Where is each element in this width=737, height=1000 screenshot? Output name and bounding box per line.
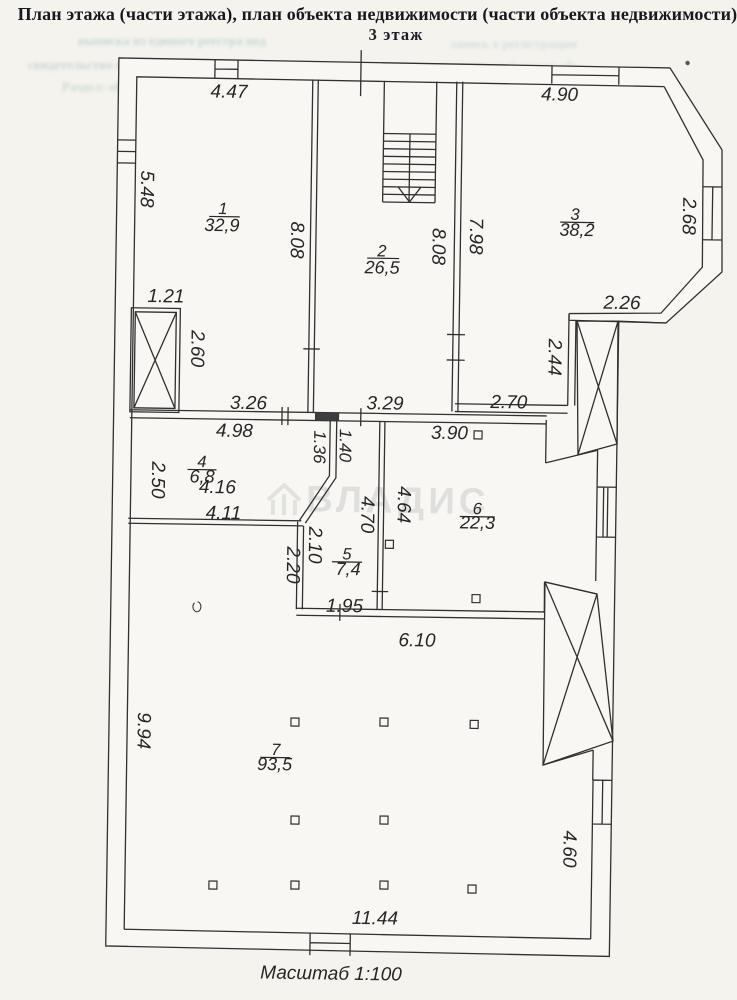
svg-text:3.26: 3.26 <box>230 393 268 415</box>
svg-text:9.94: 9.94 <box>132 712 154 749</box>
svg-text:6.10: 6.10 <box>398 630 436 652</box>
svg-text:7,4: 7,4 <box>335 559 360 579</box>
svg-text:2.68: 2.68 <box>678 197 700 236</box>
svg-text:4.16: 4.16 <box>199 477 237 499</box>
svg-text:4.70: 4.70 <box>356 496 378 534</box>
svg-text:4.11: 4.11 <box>206 503 242 525</box>
svg-text:1.21: 1.21 <box>147 286 184 308</box>
svg-text:22,3: 22,3 <box>459 512 495 533</box>
svg-text:2.44: 2.44 <box>543 338 565 376</box>
svg-text:4.90: 4.90 <box>541 84 579 106</box>
svg-text:2.70: 2.70 <box>489 392 528 414</box>
svg-text:Масштаб 1:100: Масштаб 1:100 <box>260 962 402 985</box>
svg-text:32,9: 32,9 <box>204 215 239 236</box>
svg-text:7.98: 7.98 <box>465 217 487 255</box>
svg-text:8.08: 8.08 <box>427 228 449 266</box>
svg-text:2.20: 2.20 <box>282 545 304 584</box>
svg-text:4.64: 4.64 <box>393 486 415 523</box>
svg-text:38,2: 38,2 <box>559 220 594 241</box>
svg-text:3.90: 3.90 <box>431 423 469 445</box>
svg-text:3.29: 3.29 <box>366 393 404 415</box>
svg-text:5.48: 5.48 <box>136 170 158 208</box>
svg-text:93,5: 93,5 <box>257 754 293 775</box>
svg-text:2.50: 2.50 <box>147 460 169 499</box>
svg-text:2.60: 2.60 <box>186 329 208 368</box>
svg-text:11.44: 11.44 <box>352 908 398 930</box>
svg-text:1.95: 1.95 <box>326 596 364 618</box>
svg-text:2.26: 2.26 <box>602 293 641 315</box>
svg-text:8.08: 8.08 <box>286 221 308 259</box>
svg-text:4.60: 4.60 <box>558 830 580 868</box>
svg-text:1.36: 1.36 <box>310 430 329 464</box>
svg-text:1.40: 1.40 <box>335 429 354 463</box>
svg-text:26,5: 26,5 <box>363 257 400 278</box>
svg-text:4.98: 4.98 <box>216 421 254 443</box>
svg-text:4.47: 4.47 <box>210 81 249 103</box>
svg-text:2.10: 2.10 <box>304 525 326 564</box>
